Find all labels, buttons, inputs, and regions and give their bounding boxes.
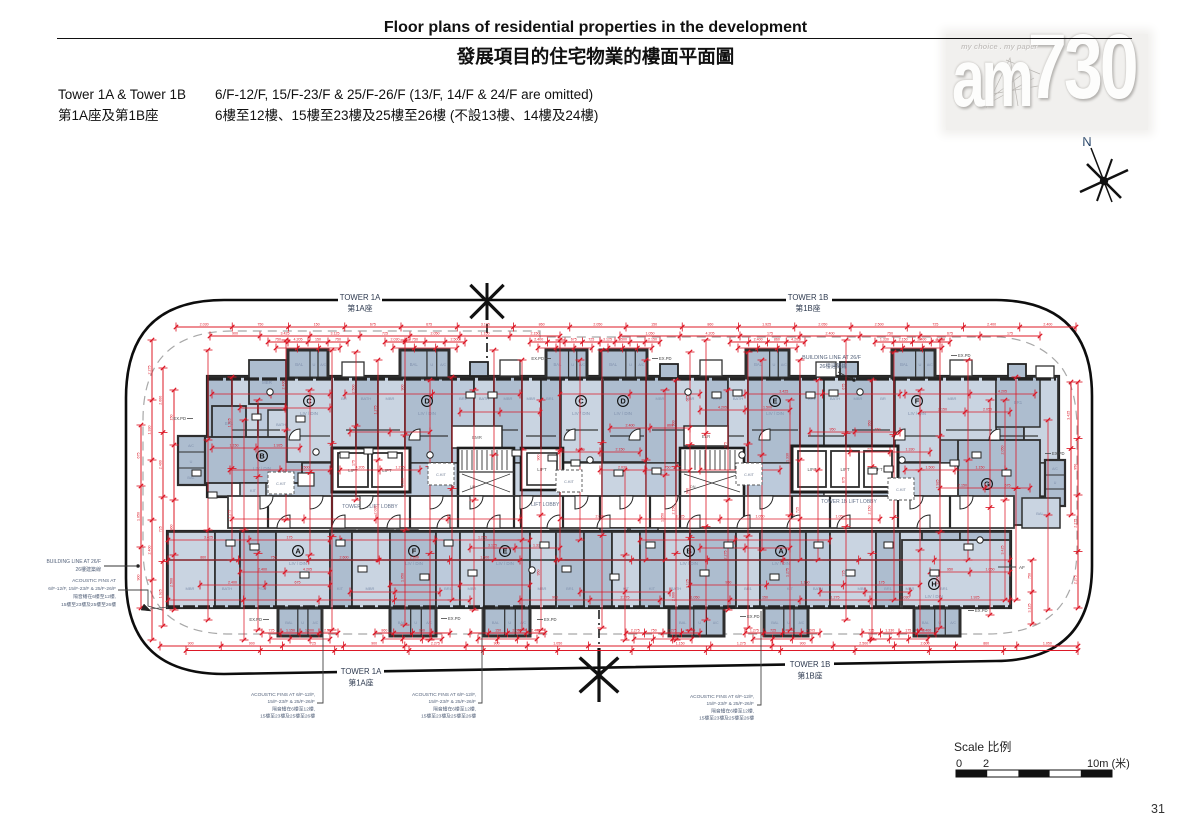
- svg-text:MBR: MBR: [262, 380, 272, 385]
- svg-text:TOWER 1A: TOWER 1A: [340, 293, 381, 302]
- svg-text:860: 860: [774, 337, 780, 341]
- svg-text:900: 900: [401, 385, 405, 391]
- svg-text:675: 675: [137, 453, 141, 459]
- svg-text:F: F: [915, 397, 920, 406]
- svg-text:2.030: 2.030: [374, 506, 378, 515]
- svg-text:U: U: [1054, 481, 1057, 485]
- svg-text:C.KIT: C.KIT: [276, 482, 286, 486]
- svg-text:1.925: 1.925: [159, 589, 163, 598]
- svg-text:U: U: [629, 362, 632, 367]
- svg-text:A/C: A/C: [781, 363, 787, 367]
- svg-text:MBR: MBR: [366, 586, 375, 591]
- svg-text:BAL: BAL: [295, 362, 304, 367]
- svg-text:DN: DN: [690, 485, 696, 489]
- svg-text:725: 725: [269, 628, 275, 632]
- svg-text:MBR: MBR: [656, 396, 665, 401]
- svg-text:A/C: A/C: [1052, 467, 1058, 471]
- svg-text:BUILDING LINE AT 26/F: BUILDING LINE AT 26/F: [46, 559, 101, 565]
- svg-text:900: 900: [137, 575, 141, 581]
- svg-text:675: 675: [686, 395, 690, 401]
- svg-text:150: 150: [651, 322, 657, 326]
- svg-text:隔音鰭在6樓至12樓,: 隔音鰭在6樓至12樓,: [433, 705, 476, 712]
- svg-text:675: 675: [947, 331, 953, 335]
- svg-text:2.400: 2.400: [754, 337, 763, 341]
- svg-text:31: 31: [1151, 802, 1165, 816]
- svg-text:675: 675: [295, 580, 301, 584]
- svg-text:4.205: 4.205: [806, 628, 815, 632]
- svg-text:第1B座: 第1B座: [795, 303, 820, 313]
- svg-text:LIV / DIN: LIV / DIN: [496, 561, 514, 566]
- svg-text:BAL: BAL: [554, 362, 563, 367]
- svg-text:TOWER 1A: TOWER 1A: [341, 667, 382, 676]
- svg-text:MBR: MBR: [854, 396, 863, 401]
- svg-text:第1B座: 第1B座: [797, 671, 822, 681]
- svg-text:750: 750: [651, 628, 657, 632]
- svg-text:950: 950: [830, 427, 836, 431]
- svg-text:15/F-23/F & 25/F-26/F: 15/F-23/F & 25/F-26/F: [429, 699, 477, 705]
- svg-text:TOWER 1B LIFT LOBBY: TOWER 1B LIFT LOBBY: [821, 499, 877, 505]
- svg-text:860: 860: [381, 628, 387, 632]
- svg-text:TOWER 1A LIFT LOBBY: TOWER 1A LIFT LOBBY: [342, 504, 398, 510]
- svg-text:BR1: BR1: [546, 396, 555, 401]
- svg-text:1.925: 1.925: [274, 443, 283, 447]
- svg-text:725: 725: [932, 322, 938, 326]
- svg-text:2.050: 2.050: [818, 322, 827, 326]
- svg-text:BAL: BAL: [285, 620, 293, 625]
- svg-text:1.500: 1.500: [301, 465, 310, 469]
- svg-text:A/C: A/C: [950, 621, 956, 625]
- svg-text:2.030: 2.030: [596, 514, 605, 518]
- svg-text:2.050: 2.050: [983, 407, 992, 411]
- svg-text:150: 150: [762, 595, 768, 599]
- svg-text:2.150: 2.150: [938, 407, 947, 411]
- svg-text:2.050: 2.050: [1001, 446, 1005, 455]
- svg-text:750: 750: [275, 337, 281, 341]
- svg-text:1.150: 1.150: [481, 331, 490, 335]
- svg-text:4.205: 4.205: [303, 567, 312, 571]
- svg-text:1.330: 1.330: [885, 628, 894, 632]
- svg-text:150: 150: [314, 322, 320, 326]
- svg-text:BR1: BR1: [444, 586, 453, 591]
- svg-text:KIT: KIT: [649, 586, 656, 591]
- svg-text:BR1: BR1: [566, 586, 575, 591]
- svg-text:KIT: KIT: [337, 586, 344, 591]
- svg-text:2.275: 2.275: [228, 510, 232, 519]
- svg-text:2.400: 2.400: [987, 322, 996, 326]
- svg-text:1.925: 1.925: [971, 595, 980, 599]
- svg-text:1.925: 1.925: [762, 322, 771, 326]
- svg-text:3.425: 3.425: [204, 535, 213, 539]
- svg-text:750: 750: [271, 555, 277, 559]
- svg-text:MBR: MBR: [468, 586, 477, 591]
- svg-text:D: D: [424, 397, 430, 406]
- svg-text:BATH: BATH: [276, 423, 286, 427]
- svg-text:3.425: 3.425: [281, 331, 290, 335]
- svg-text:175: 175: [1007, 331, 1013, 335]
- svg-text:675: 675: [426, 322, 432, 326]
- svg-text:4.205: 4.205: [356, 465, 365, 469]
- svg-text:MBR: MBR: [527, 396, 536, 401]
- svg-text:2.400: 2.400: [1043, 322, 1052, 326]
- svg-text:1.050: 1.050: [661, 513, 665, 522]
- svg-text:UP: UP: [470, 485, 476, 489]
- svg-text:2.500: 2.500: [875, 322, 884, 326]
- svg-text:725: 725: [382, 331, 388, 335]
- svg-text:2.150: 2.150: [868, 506, 872, 515]
- svg-text:950: 950: [1074, 464, 1078, 470]
- svg-text:4.205: 4.205: [998, 389, 1007, 393]
- svg-text:860: 860: [707, 322, 713, 326]
- svg-text:725: 725: [770, 628, 776, 632]
- svg-text:3.125: 3.125: [481, 322, 490, 326]
- svg-text:C.KIT: C.KIT: [744, 473, 754, 477]
- svg-text:LIV / DIN: LIV / DIN: [614, 411, 632, 416]
- svg-text:750: 750: [887, 331, 893, 335]
- svg-text:U: U: [919, 362, 922, 367]
- svg-text:1.500: 1.500: [763, 405, 772, 409]
- svg-text:4.205: 4.205: [791, 337, 800, 341]
- svg-text:隔音鰭在6樓至12樓,: 隔音鰭在6樓至12樓,: [272, 705, 315, 712]
- svg-text:1.275: 1.275: [786, 568, 790, 577]
- svg-text:2.275: 2.275: [668, 628, 677, 632]
- svg-text:860: 860: [170, 525, 174, 531]
- svg-text:2.400: 2.400: [228, 580, 237, 584]
- svg-text:BR: BR: [341, 396, 347, 401]
- svg-text:900: 900: [494, 641, 500, 645]
- svg-text:1.500: 1.500: [618, 337, 627, 341]
- svg-text:EX.PD: EX.PD: [747, 614, 760, 619]
- svg-text:TOWER 1B: TOWER 1B: [790, 660, 831, 669]
- svg-text:750: 750: [1028, 573, 1032, 579]
- svg-text:MBR: MBR: [504, 396, 513, 401]
- svg-text:2.275: 2.275: [1074, 519, 1078, 528]
- svg-text:1.925: 1.925: [936, 480, 940, 489]
- svg-text:6/F-12/F, 15/F-23/F & 25/F-26/: 6/F-12/F, 15/F-23/F & 25/F-26/F: [48, 586, 116, 592]
- svg-text:3.125: 3.125: [603, 337, 612, 341]
- svg-text:LIV / DIN: LIV / DIN: [680, 561, 698, 566]
- svg-text:1.150: 1.150: [286, 628, 295, 632]
- svg-text:900: 900: [371, 641, 377, 645]
- svg-text:2.400: 2.400: [534, 337, 543, 341]
- svg-text:LIFT: LIFT: [537, 467, 547, 472]
- svg-text:1.050: 1.050: [553, 641, 562, 645]
- svg-text:LIFT: LIFT: [382, 468, 392, 473]
- svg-text:1.330: 1.330: [148, 426, 152, 435]
- svg-text:EMR: EMR: [472, 435, 482, 440]
- svg-text:U: U: [414, 621, 417, 625]
- svg-text:2.275: 2.275: [631, 628, 640, 632]
- svg-text:BATH: BATH: [361, 396, 371, 401]
- svg-text:1.050: 1.050: [137, 512, 141, 521]
- svg-text:725: 725: [310, 641, 316, 645]
- svg-text:900: 900: [249, 641, 255, 645]
- svg-text:1.500: 1.500: [305, 628, 314, 632]
- svg-text:150: 150: [315, 337, 321, 341]
- svg-text:ACOUSTIC FINS AT: ACOUSTIC FINS AT: [72, 578, 116, 584]
- svg-text:MBR: MBR: [186, 586, 195, 591]
- svg-text:EX.PD: EX.PD: [659, 356, 672, 361]
- svg-text:BAL: BAL: [900, 362, 909, 367]
- svg-text:1.500: 1.500: [926, 465, 935, 469]
- svg-text:1.050: 1.050: [1043, 641, 1052, 645]
- svg-text:1.050: 1.050: [646, 331, 655, 335]
- svg-text:2.275: 2.275: [1074, 575, 1078, 584]
- svg-text:1.330: 1.330: [880, 337, 889, 341]
- svg-text:950: 950: [947, 567, 953, 571]
- svg-text:675: 675: [724, 442, 728, 448]
- svg-text:4.205: 4.205: [706, 331, 715, 335]
- svg-text:1.330: 1.330: [401, 478, 405, 487]
- svg-text:2.400: 2.400: [917, 337, 926, 341]
- svg-text:U: U: [773, 362, 776, 367]
- svg-text:1.275: 1.275: [750, 628, 759, 632]
- svg-text:EX.PD: EX.PD: [544, 617, 557, 622]
- svg-text:EX.PD: EX.PD: [531, 356, 544, 361]
- svg-text:900: 900: [672, 420, 676, 426]
- svg-text:U: U: [698, 621, 701, 625]
- svg-text:2.500: 2.500: [859, 641, 868, 645]
- svg-text:725: 725: [159, 526, 163, 532]
- svg-text:ACOUSTIC FINS AT 6/F-12/F,: ACOUSTIC FINS AT 6/F-12/F,: [251, 692, 315, 698]
- svg-text:900: 900: [232, 331, 238, 335]
- svg-text:675: 675: [842, 384, 846, 390]
- svg-text:BAL: BAL: [754, 362, 763, 367]
- svg-text:3.125: 3.125: [1028, 604, 1032, 613]
- svg-text:1.050: 1.050: [401, 573, 405, 582]
- svg-text:900: 900: [686, 488, 690, 494]
- svg-text:A/C: A/C: [638, 363, 644, 367]
- svg-text:2.050: 2.050: [593, 322, 602, 326]
- svg-text:ACOUSTIC FINS AT 6/F-12/F,: ACOUSTIC FINS AT 6/F-12/F,: [412, 692, 476, 698]
- svg-text:2.275: 2.275: [148, 366, 152, 375]
- svg-text:MBR: MBR: [386, 396, 395, 401]
- svg-text:A/C: A/C: [799, 621, 805, 625]
- svg-text:TOWER 1B: TOWER 1B: [788, 293, 829, 302]
- svg-text:175: 175: [287, 535, 293, 539]
- svg-text:F: F: [412, 547, 417, 556]
- svg-text:A/C: A/C: [313, 621, 319, 625]
- svg-text:2.600: 2.600: [672, 592, 676, 601]
- svg-text:15樓至23樓及25樓至26樓: 15樓至23樓及25樓至26樓: [260, 713, 315, 720]
- svg-text:15樓至23樓及25樓至26樓: 15樓至23樓及25樓至26樓: [61, 601, 116, 608]
- svg-text:BR1: BR1: [884, 586, 893, 591]
- svg-text:2.400: 2.400: [159, 460, 163, 469]
- svg-text:BAL: BAL: [609, 362, 618, 367]
- svg-text:2.150: 2.150: [616, 447, 625, 451]
- svg-text:1.050: 1.050: [756, 514, 765, 518]
- svg-text:750: 750: [665, 465, 671, 469]
- svg-text:LIV / DIN: LIV / DIN: [572, 411, 590, 416]
- svg-text:Scale 比例: Scale 比例: [954, 740, 1011, 754]
- svg-text:1.150: 1.150: [976, 465, 985, 469]
- svg-text:BUILDING LINE AT 26/F: BUILDING LINE AT 26/F: [802, 355, 862, 361]
- svg-text:C: C: [578, 397, 584, 406]
- svg-text:1.150: 1.150: [801, 580, 810, 584]
- svg-text:175: 175: [767, 331, 773, 335]
- svg-text:MBR: MBR: [538, 586, 547, 591]
- svg-text:EX.PD: EX.PD: [448, 616, 461, 621]
- svg-text:MBR: MBR: [948, 396, 957, 401]
- svg-text:BAL: BAL: [410, 362, 419, 367]
- svg-text:750: 750: [257, 322, 263, 326]
- svg-text:3.425: 3.425: [1001, 546, 1005, 555]
- svg-text:EX.PD: EX.PD: [975, 608, 988, 613]
- svg-text:LIV / DIN: LIV / DIN: [766, 411, 784, 416]
- svg-text:3.425: 3.425: [779, 389, 788, 393]
- svg-text:ACOUSTIC FINS AT 6/F-12/F,: ACOUSTIC FINS AT 6/F-12/F,: [690, 694, 754, 700]
- svg-text:A/C: A/C: [426, 621, 432, 625]
- svg-text:1.150: 1.150: [676, 641, 685, 645]
- svg-text:C.KIT: C.KIT: [436, 473, 446, 477]
- svg-text:4.205: 4.205: [294, 337, 303, 341]
- svg-text:KIT: KIT: [250, 489, 257, 493]
- svg-text:2.275: 2.275: [724, 551, 728, 560]
- svg-text:1.330: 1.330: [906, 447, 915, 451]
- svg-text:675: 675: [370, 322, 376, 326]
- svg-text:3.425: 3.425: [1067, 411, 1071, 420]
- svg-text:B: B: [259, 452, 264, 461]
- svg-text:2.400: 2.400: [282, 381, 286, 390]
- svg-text:A/C: A/C: [520, 621, 526, 625]
- svg-text:EX.PD: EX.PD: [958, 353, 971, 358]
- svg-text:2.500: 2.500: [170, 578, 174, 587]
- svg-text:LIV / DIN: LIV / DIN: [289, 561, 307, 566]
- svg-text:2.150: 2.150: [899, 337, 908, 341]
- svg-text:0: 0: [956, 758, 962, 770]
- svg-text:3.125: 3.125: [488, 543, 497, 547]
- svg-text:175: 175: [352, 460, 356, 466]
- svg-text:A/C: A/C: [713, 621, 719, 625]
- svg-text:4.205: 4.205: [718, 405, 727, 409]
- svg-text:BATH: BATH: [830, 396, 840, 401]
- svg-text:C: C: [306, 397, 312, 406]
- svg-text:1.330: 1.330: [786, 453, 790, 462]
- svg-text:BAL: BAL: [187, 476, 194, 480]
- svg-text:2.600: 2.600: [410, 555, 419, 559]
- svg-text:26樓建築線: 26樓建築線: [75, 566, 101, 573]
- svg-text:725: 725: [842, 570, 846, 576]
- svg-text:750: 750: [335, 337, 341, 341]
- svg-text:725: 725: [796, 507, 800, 513]
- svg-text:U: U: [571, 362, 574, 367]
- svg-text:1.050: 1.050: [691, 595, 700, 599]
- svg-text:150: 150: [495, 628, 501, 632]
- svg-text:BAL: BAL: [922, 620, 930, 625]
- svg-text:900: 900: [188, 641, 194, 645]
- svg-text:15/F-23/F & 25/F-26/F: 15/F-23/F & 25/F-26/F: [268, 699, 316, 705]
- svg-text:1.275: 1.275: [831, 595, 840, 599]
- svg-text:EX.PD: EX.PD: [249, 617, 262, 622]
- svg-text:BAL: BAL: [679, 620, 687, 625]
- svg-text:2.600: 2.600: [340, 555, 349, 559]
- svg-text:BR: BR: [880, 396, 886, 401]
- svg-text:900: 900: [552, 595, 558, 599]
- svg-text:900: 900: [800, 641, 806, 645]
- svg-text:D: D: [620, 397, 626, 406]
- svg-text:1.150: 1.150: [230, 443, 239, 447]
- svg-text:15/F-23/F & 25/F-26/F: 15/F-23/F & 25/F-26/F: [707, 701, 755, 707]
- svg-text:BAL: BAL: [1036, 511, 1044, 516]
- svg-text:2.030: 2.030: [391, 337, 400, 341]
- svg-text:2.275: 2.275: [431, 641, 440, 645]
- svg-text:2: 2: [983, 758, 989, 770]
- svg-text:2.150: 2.150: [648, 337, 657, 341]
- svg-text:A: A: [295, 547, 301, 556]
- svg-text:950: 950: [868, 420, 872, 426]
- svg-text:B: B: [686, 547, 691, 556]
- svg-text:BAL: BAL: [492, 620, 500, 625]
- svg-text:LIV / DIN: LIV / DIN: [405, 561, 423, 566]
- svg-text:175: 175: [905, 628, 911, 632]
- svg-text:第1A座: 第1A座: [348, 678, 373, 688]
- svg-text:A/C: A/C: [188, 444, 194, 448]
- svg-text:EX.PD: EX.PD: [173, 416, 186, 421]
- svg-text:3.125: 3.125: [676, 514, 685, 518]
- svg-text:3.125: 3.125: [686, 579, 690, 588]
- svg-text:2.600: 2.600: [159, 396, 163, 405]
- svg-text:3.125: 3.125: [331, 331, 340, 335]
- svg-text:A/C: A/C: [927, 363, 933, 367]
- svg-text:2.400: 2.400: [148, 546, 152, 555]
- svg-text:2.150: 2.150: [958, 483, 967, 487]
- svg-text:15樓至23樓及25樓至26樓: 15樓至23樓及25樓至26樓: [699, 715, 754, 722]
- svg-text:1.275: 1.275: [396, 465, 405, 469]
- svg-text:2.500: 2.500: [352, 385, 356, 394]
- svg-text:BATH: BATH: [733, 396, 743, 401]
- svg-text:2.600: 2.600: [936, 576, 940, 585]
- svg-text:1.275: 1.275: [478, 535, 487, 539]
- svg-text:750: 750: [412, 337, 418, 341]
- svg-text:BAL: BAL: [771, 620, 779, 625]
- svg-text:LIV / DIN: LIV / DIN: [300, 411, 318, 416]
- svg-text:BATH: BATH: [222, 586, 232, 591]
- svg-text:1.500: 1.500: [480, 555, 489, 559]
- svg-text:175: 175: [879, 580, 885, 584]
- svg-text:BR1: BR1: [1014, 400, 1023, 405]
- svg-text:隔音鰭在6樓至12樓,: 隔音鰭在6樓至12樓,: [73, 593, 116, 600]
- svg-text:2.400: 2.400: [626, 423, 635, 427]
- svg-text:2.500: 2.500: [451, 337, 460, 341]
- svg-text:950: 950: [419, 628, 425, 632]
- svg-text:C.KIT: C.KIT: [896, 488, 906, 492]
- svg-text:675: 675: [1005, 483, 1011, 487]
- svg-text:2.050: 2.050: [431, 331, 440, 335]
- svg-text:900: 900: [537, 455, 541, 461]
- svg-text:2.150: 2.150: [672, 506, 676, 515]
- svg-text:725: 725: [868, 628, 874, 632]
- svg-text:2.400: 2.400: [258, 567, 267, 571]
- svg-text:LIFT: LIFT: [807, 467, 816, 472]
- svg-text:860: 860: [200, 555, 206, 559]
- svg-text:隔音鰭在6樓至12樓,: 隔音鰭在6樓至12樓,: [711, 707, 754, 714]
- svg-text:BR1: BR1: [940, 586, 949, 591]
- svg-text:675: 675: [571, 337, 577, 341]
- svg-text:LIFT: LIFT: [840, 467, 849, 472]
- svg-text:2.030: 2.030: [200, 322, 209, 326]
- svg-text:A/C: A/C: [440, 363, 446, 367]
- svg-text:10m (米): 10m (米): [1087, 757, 1130, 770]
- svg-text:U: U: [190, 460, 193, 464]
- svg-text:C.KIT: C.KIT: [564, 480, 574, 484]
- svg-text:725: 725: [588, 337, 594, 341]
- svg-text:U: U: [508, 621, 511, 625]
- svg-text:A/C: A/C: [320, 363, 326, 367]
- svg-text:1.275: 1.275: [737, 641, 746, 645]
- svg-text:F LIFT LOBBY: F LIFT LOBBY: [527, 502, 560, 508]
- svg-text:26樓建築線: 26樓建築線: [819, 362, 847, 370]
- svg-text:950: 950: [537, 570, 541, 576]
- svg-text:E: E: [773, 397, 778, 406]
